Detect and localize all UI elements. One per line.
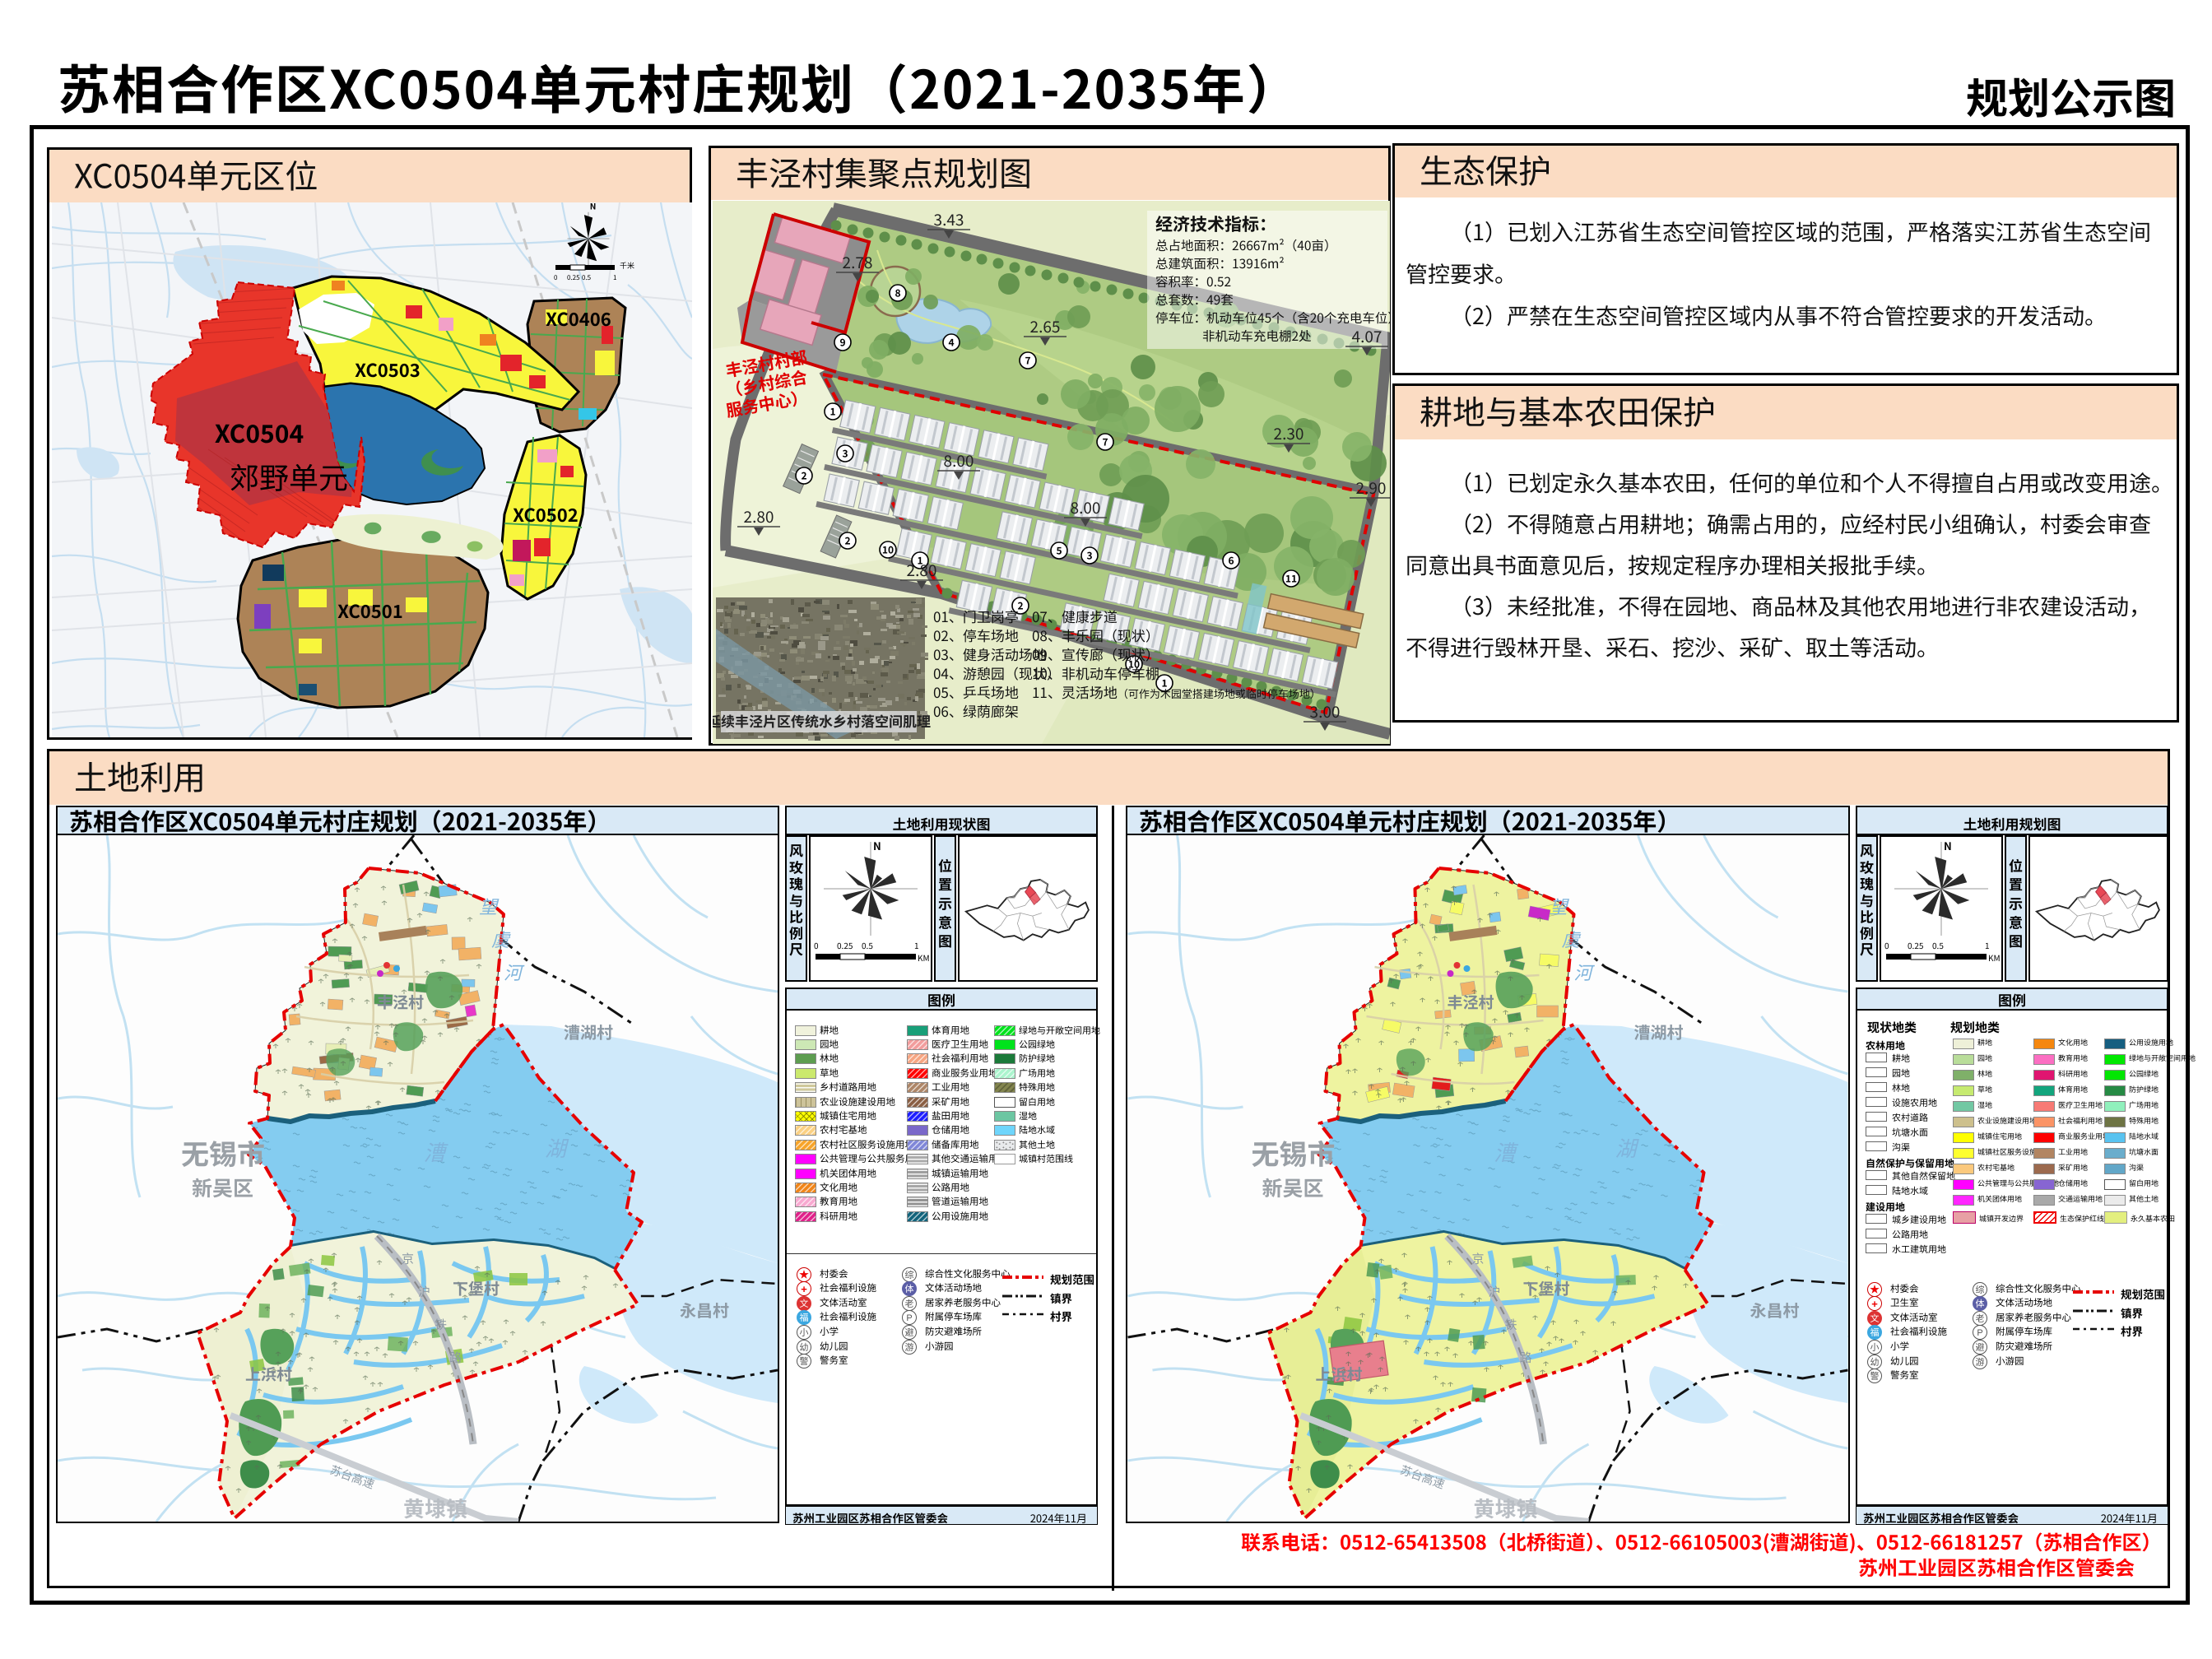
svg-text:N: N — [873, 838, 881, 853]
svg-text:6: 6 — [1228, 554, 1234, 568]
svg-text:N: N — [1944, 838, 1952, 853]
svg-text:XC0504: XC0504 — [215, 414, 304, 450]
svg-text:7: 7 — [1102, 435, 1108, 449]
svg-text:沪: 沪 — [418, 1283, 430, 1300]
svg-text:路: 路 — [449, 1349, 462, 1366]
svg-text:8.00: 8.00 — [944, 449, 974, 472]
svg-text:2: 2 — [844, 534, 850, 548]
svg-text:新吴区: 新吴区 — [192, 1173, 253, 1202]
svg-text:N: N — [590, 202, 597, 211]
svg-text:3.43: 3.43 — [934, 208, 964, 230]
svg-text:2.65: 2.65 — [1030, 315, 1061, 337]
svg-text:新吴区: 新吴区 — [1262, 1173, 1324, 1202]
svg-text:10、非机动车停车棚: 10、非机动车停车棚 — [1032, 662, 1159, 683]
svg-text:漕湖村: 漕湖村 — [1634, 1020, 1684, 1043]
svg-text:02、停车场地: 02、停车场地 — [933, 625, 1019, 645]
svg-text:1: 1 — [613, 273, 616, 282]
svg-text:虞: 虞 — [1562, 926, 1582, 952]
svg-text:1: 1 — [1985, 939, 1990, 951]
svg-text:上浜村: 上浜村 — [1316, 1363, 1363, 1385]
svg-text:1: 1 — [914, 939, 919, 951]
svg-text:0.25: 0.25 — [567, 273, 580, 282]
svg-text:KM: KM — [918, 951, 930, 964]
svg-text:8: 8 — [895, 286, 900, 300]
svg-text:XC0406: XC0406 — [546, 305, 611, 332]
svg-text:3.00: 3.00 — [1310, 700, 1341, 723]
svg-text:永昌村: 永昌村 — [1750, 1298, 1800, 1322]
svg-text:郊野单元: 郊野单元 — [230, 455, 348, 498]
svg-text:09、宣传廊（现状）: 09、宣传廊（现状） — [1032, 644, 1159, 664]
svg-text:07、健康步道: 07、健康步道 — [1032, 606, 1118, 626]
svg-text:7: 7 — [1025, 354, 1030, 368]
svg-text:总建筑面积：13916m²: 总建筑面积：13916m² — [1155, 254, 1285, 272]
svg-text:无锡市: 无锡市 — [181, 1132, 265, 1173]
svg-text:路: 路 — [1520, 1349, 1532, 1366]
svg-text:容积率：0.52: 容积率：0.52 — [1155, 272, 1231, 290]
svg-text:铁: 铁 — [434, 1316, 447, 1333]
svg-text:湖: 湖 — [545, 1132, 569, 1163]
svg-text:沪: 沪 — [1489, 1283, 1501, 1300]
svg-text:10: 10 — [882, 543, 894, 557]
svg-text:0: 0 — [554, 273, 558, 282]
svg-text:0.25: 0.25 — [1908, 939, 1924, 951]
svg-text:总占地面积：26667m²（40亩）: 总占地面积：26667m²（40亩） — [1155, 236, 1336, 254]
svg-text:3: 3 — [842, 447, 848, 461]
svg-text:11: 11 — [1285, 572, 1297, 586]
svg-text:延续丰泾片区传统水乡村落空间肌理: 延续丰泾片区传统水乡村落空间肌理 — [713, 710, 931, 731]
svg-text:2.30: 2.30 — [1274, 422, 1304, 444]
svg-text:2.78: 2.78 — [843, 251, 873, 273]
svg-text:06、绿荫廊架: 06、绿荫廊架 — [933, 700, 1019, 721]
svg-text:2.80: 2.80 — [744, 505, 774, 527]
svg-text:停车位：机动车位45个（含20个充电车位）: 停车位：机动车位45个（含20个充电车位） — [1155, 309, 1390, 327]
svg-text:9: 9 — [839, 336, 845, 350]
svg-text:03、健身活动场地: 03、健身活动场地 — [933, 644, 1047, 664]
svg-text:XC0501: XC0501 — [337, 597, 402, 624]
svg-text:1: 1 — [829, 405, 835, 419]
svg-text:上浜村: 上浜村 — [245, 1363, 292, 1385]
svg-text:望: 望 — [479, 893, 500, 919]
svg-text:0.5: 0.5 — [862, 939, 873, 951]
svg-text:永昌村: 永昌村 — [680, 1298, 729, 1322]
svg-text:2: 2 — [801, 469, 806, 483]
svg-text:08、丰乐园（现状）: 08、丰乐园（现状） — [1032, 625, 1159, 645]
svg-text:0.25: 0.25 — [837, 939, 853, 951]
svg-text:2.80: 2.80 — [907, 559, 937, 581]
svg-text:无锡市: 无锡市 — [1252, 1132, 1336, 1173]
svg-text:01、门卫岗亭: 01、门卫岗亭 — [933, 606, 1019, 626]
svg-text:XC0502: XC0502 — [513, 501, 578, 527]
svg-text:4: 4 — [948, 336, 954, 350]
svg-text:望: 望 — [1550, 893, 1570, 919]
svg-text:下堡村: 下堡村 — [453, 1277, 500, 1299]
svg-text:虞: 虞 — [491, 926, 511, 952]
svg-text:下堡村: 下堡村 — [1523, 1277, 1570, 1299]
svg-text:0: 0 — [1884, 939, 1889, 951]
svg-text:丰泾村: 丰泾村 — [1448, 991, 1494, 1013]
svg-text:05、乒乓场地: 05、乒乓场地 — [933, 681, 1019, 702]
svg-text:漕: 漕 — [1494, 1136, 1519, 1167]
svg-text:漕湖村: 漕湖村 — [564, 1020, 613, 1043]
svg-text:0.5: 0.5 — [1932, 939, 1944, 951]
svg-text:3: 3 — [1086, 549, 1092, 563]
svg-text:4.07: 4.07 — [1352, 325, 1382, 347]
svg-text:总套数：49套: 总套数：49套 — [1155, 290, 1234, 309]
svg-text:京: 京 — [1472, 1250, 1485, 1267]
svg-text:0.5: 0.5 — [582, 273, 592, 282]
svg-text:KM: KM — [1988, 951, 2001, 964]
svg-text:0: 0 — [814, 939, 819, 951]
svg-text:8.00: 8.00 — [1071, 496, 1101, 518]
svg-text:5: 5 — [1056, 544, 1062, 558]
svg-text:铁: 铁 — [1505, 1316, 1517, 1333]
svg-text:漕: 漕 — [424, 1136, 448, 1167]
svg-text:2.90: 2.90 — [1356, 476, 1387, 499]
svg-text:黄埭镇: 黄埭镇 — [1474, 1493, 1538, 1522]
svg-text:千米: 千米 — [620, 260, 634, 271]
svg-text:京: 京 — [402, 1250, 414, 1267]
svg-text:丰泾村: 丰泾村 — [377, 991, 424, 1013]
svg-text:黄埭镇: 黄埭镇 — [403, 1493, 467, 1522]
svg-text:湖: 湖 — [1615, 1132, 1640, 1163]
svg-text:经济技术指标：: 经济技术指标： — [1155, 211, 1276, 236]
svg-text:非机动车充电棚2处: 非机动车充电棚2处 — [1202, 327, 1312, 345]
svg-text:XC0503: XC0503 — [355, 356, 420, 383]
